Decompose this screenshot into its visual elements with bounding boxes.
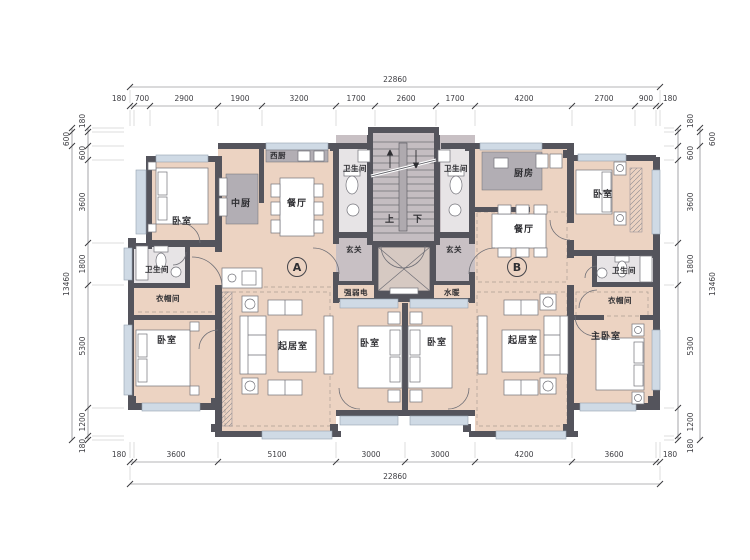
label-kitchen-a: 中厨 — [231, 197, 251, 209]
floor-plan-sheet: 西厨 中厨 餐厅 卫生间 卫生间 厨房 卧室 卧室 餐厅 玄关 玄关 上 下 卫… — [0, 0, 750, 560]
dim-left-4: 5300 — [78, 336, 87, 355]
label-bedroom-top-right: 卧室 — [593, 188, 613, 200]
label-kitchen-b: 厨房 — [514, 167, 534, 179]
label-elec: 强弱电 — [344, 287, 368, 297]
label-bath-core-a: 卫生间 — [343, 163, 367, 173]
label-west-kitchen: 西厨 — [270, 151, 286, 160]
dim-bot-5: 4200 — [514, 450, 533, 459]
dim-right-0: 180 — [686, 114, 695, 129]
dim-left-overall: 13460 — [62, 272, 71, 296]
dim-top-0: 180 — [112, 94, 127, 103]
dim-bot-1: 3600 — [166, 450, 185, 459]
dim-top-3: 1900 — [230, 94, 249, 103]
closet-strip-living-a — [222, 292, 232, 426]
floor-plan-drawing: 西厨 中厨 餐厅 卫生间 卫生间 厨房 卧室 卧室 餐厅 玄关 玄关 上 下 卫… — [0, 0, 750, 560]
label-bedroom-top-left: 卧室 — [172, 215, 192, 227]
dimensions-bottom: 22860 180 3600 5100 3000 3000 4200 3600 … — [112, 442, 678, 487]
dim-top-8: 4200 — [514, 94, 533, 103]
dim-left-1: 600 — [78, 146, 87, 161]
label-plumbing: 水暖 — [444, 287, 460, 297]
dim-top-1: 700 — [135, 94, 150, 103]
dimensions-top: 22860 180 700 2900 1900 3200 1700 2600 1… — [112, 75, 678, 126]
label-master-bedroom: 主卧室 — [591, 330, 621, 342]
label-cloak-right: 衣帽间 — [608, 295, 632, 305]
dim-left-3: 1800 — [78, 254, 87, 273]
dim-top-2: 2900 — [174, 94, 193, 103]
dim-top-6: 2600 — [396, 94, 415, 103]
unit-letter-a: A — [293, 261, 302, 274]
dim-top-7: 1700 — [445, 94, 464, 103]
dim-top-5: 1700 — [346, 94, 365, 103]
unit-letter-b: B — [513, 261, 521, 274]
label-bedroom-mid-b: 卧室 — [427, 336, 447, 348]
dim-bot-7: 180 — [663, 450, 678, 459]
bed-bottom-left — [136, 322, 199, 395]
dim-right-6: 180 — [686, 439, 695, 454]
dim-top-4: 3200 — [289, 94, 308, 103]
dim-right-overall: 13460 — [708, 272, 717, 296]
dim-bot-0: 180 — [112, 450, 127, 459]
dim-right-5: 1200 — [686, 412, 695, 431]
label-entry-a: 玄关 — [346, 244, 362, 254]
label-dining-a: 餐厅 — [286, 197, 307, 209]
dim-left-6: 180 — [78, 439, 87, 454]
dim-bot-6: 3600 — [604, 450, 623, 459]
label-bath-core-b: 卫生间 — [444, 163, 468, 173]
dim-top-11: 180 — [663, 94, 678, 103]
dimensions-left: 180 600 3600 1800 5300 1200 180 600 1346… — [62, 114, 124, 454]
label-bath-right: 卫生间 — [612, 265, 636, 275]
dim-top-9: 2700 — [594, 94, 613, 103]
dimensions-right: 180 600 3600 1800 5300 1200 180 600 1346… — [664, 114, 717, 454]
staircase — [371, 135, 436, 241]
dim-bot-2: 5100 — [267, 450, 286, 459]
dim-left-5: 1200 — [78, 412, 87, 431]
dim-left-0: 180 — [78, 114, 87, 129]
label-living-a: 起居室 — [277, 340, 308, 352]
label-stair-down: 下 — [413, 214, 423, 225]
label-entry-b: 玄关 — [446, 244, 462, 254]
label-bedroom-bottom-left: 卧室 — [157, 334, 177, 346]
dim-right-3: 1800 — [686, 254, 695, 273]
dim-top-10: 900 — [639, 94, 654, 103]
label-dining-b: 餐厅 — [513, 223, 534, 235]
label-stair-up: 上 — [385, 213, 395, 225]
dim-bot-3: 3000 — [361, 450, 380, 459]
label-bath-left: 卫生间 — [145, 264, 169, 274]
label-living-b: 起居室 — [507, 334, 538, 346]
closet-strip-bedroom-tr — [630, 168, 642, 232]
label-bedroom-mid-a: 卧室 — [360, 337, 380, 349]
dim-right-4: 5300 — [686, 336, 695, 355]
dim-right-1: 600 — [686, 146, 695, 161]
dim-right-2: 3600 — [686, 192, 695, 211]
label-cloak-left: 衣帽间 — [156, 293, 180, 303]
dim-top-overall: 22860 — [383, 75, 407, 84]
dim-bottom-overall: 22860 — [383, 472, 407, 481]
dim-right-outer: 600 — [708, 132, 717, 147]
dim-left-outer: 600 — [62, 132, 71, 147]
dim-left-2: 3600 — [78, 192, 87, 211]
dim-bot-4: 3000 — [430, 450, 449, 459]
